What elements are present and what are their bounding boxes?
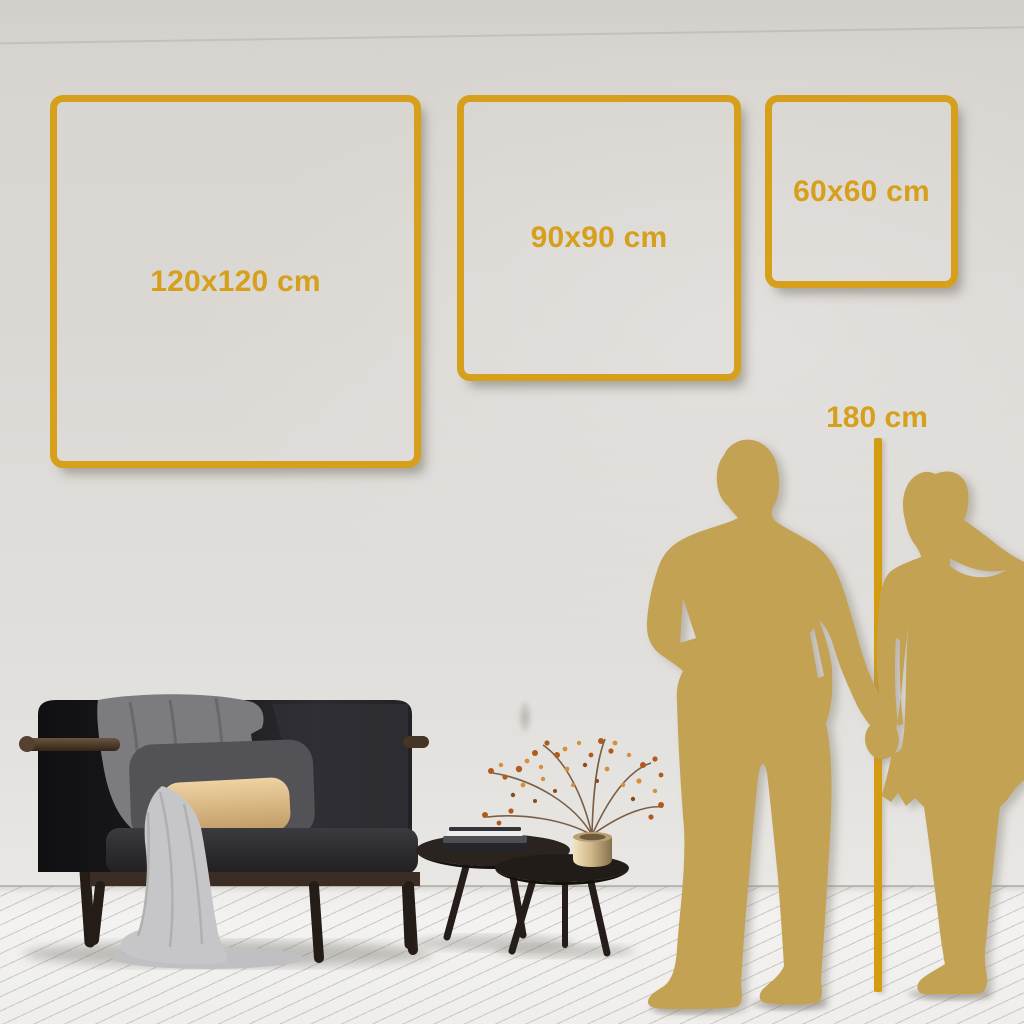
sofa-leg-front-left: [94, 886, 100, 940]
brass-vase: [573, 832, 612, 867]
size-guide-image: 120x120 cm 90x90 cm 60x60 cm 180 cm: [0, 0, 1024, 1024]
sofa-leg-front-mid: [314, 886, 319, 958]
couple-silhouette: [628, 428, 1024, 1024]
size-label-120x120: 120x120 cm: [150, 265, 321, 299]
woman-silhouette: [877, 472, 1024, 994]
size-frame-90x90: 90x90 cm: [457, 95, 741, 381]
size-frame-60x60: 60x60 cm: [765, 95, 958, 288]
size-frame-120x120: 120x120 cm: [50, 95, 421, 468]
clasped-hands: [865, 721, 899, 759]
sofa-front-rail: [90, 872, 420, 886]
book-stack: [437, 827, 529, 851]
sofa-armrest-bar-left: [22, 738, 120, 751]
man-silhouette: [647, 440, 895, 1009]
sofa-illustration: [10, 692, 455, 987]
sofa-leg-front-right: [409, 886, 413, 950]
size-label-60x60: 60x60 cm: [793, 175, 930, 209]
size-label-90x90: 90x90 cm: [531, 221, 668, 255]
armrest-knob-left: [19, 736, 35, 752]
